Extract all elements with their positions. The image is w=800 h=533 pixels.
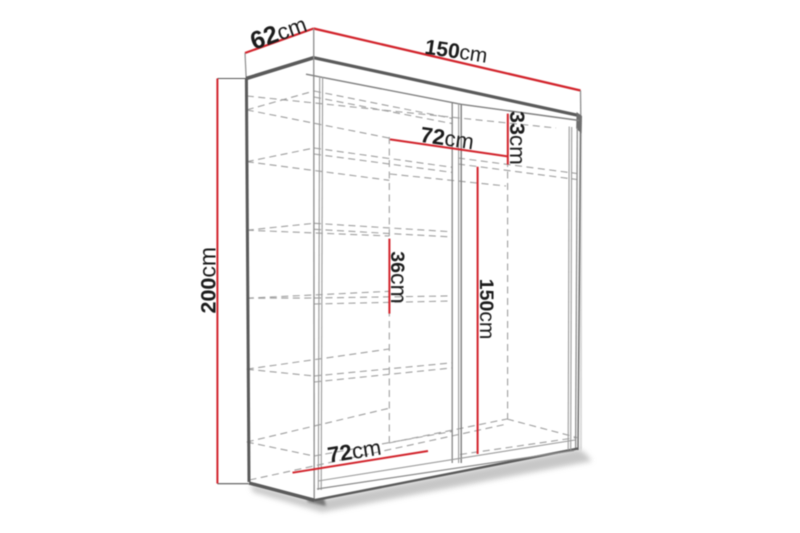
svg-text:150cm: 150cm — [475, 279, 498, 340]
svg-text:33cm: 33cm — [505, 111, 530, 165]
svg-text:36cm: 36cm — [386, 251, 412, 303]
svg-text:200cm: 200cm — [195, 247, 221, 314]
